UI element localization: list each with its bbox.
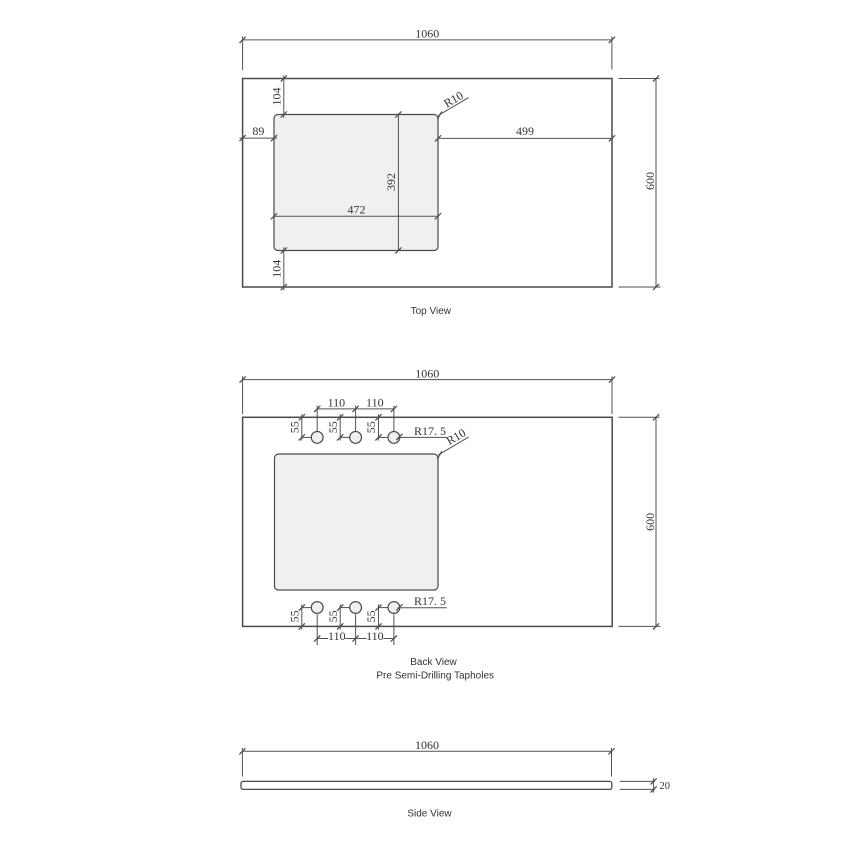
svg-text:600: 600 (643, 172, 657, 190)
svg-text:104: 104 (270, 260, 284, 278)
svg-text:89: 89 (252, 124, 264, 138)
svg-text:1060: 1060 (415, 738, 439, 752)
svg-text:55: 55 (326, 421, 340, 433)
svg-text:Top View: Top View (411, 306, 452, 317)
svg-text:55: 55 (326, 610, 340, 622)
svg-text:1060: 1060 (415, 27, 439, 41)
svg-text:110: 110 (366, 396, 384, 410)
svg-text:499: 499 (516, 124, 534, 138)
svg-text:600: 600 (643, 513, 657, 531)
svg-text:1060: 1060 (415, 366, 439, 380)
svg-text:104: 104 (270, 88, 284, 106)
svg-text:R17. 5: R17. 5 (414, 424, 446, 438)
svg-text:55: 55 (364, 421, 378, 433)
svg-text:20: 20 (660, 781, 671, 792)
svg-text:472: 472 (348, 203, 366, 217)
svg-text:392: 392 (384, 173, 398, 191)
svg-text:Back View: Back View (410, 657, 457, 668)
svg-text:110: 110 (328, 396, 346, 410)
svg-text:Pre Semi-Drilling Tapholes: Pre Semi-Drilling Tapholes (376, 671, 494, 682)
svg-text:Side View: Side View (407, 809, 452, 820)
svg-text:55: 55 (287, 610, 301, 622)
svg-text:55: 55 (287, 421, 301, 433)
svg-text:110: 110 (328, 629, 346, 643)
svg-text:55: 55 (364, 610, 378, 622)
svg-text:R17. 5: R17. 5 (414, 594, 446, 608)
svg-text:110: 110 (366, 629, 384, 643)
